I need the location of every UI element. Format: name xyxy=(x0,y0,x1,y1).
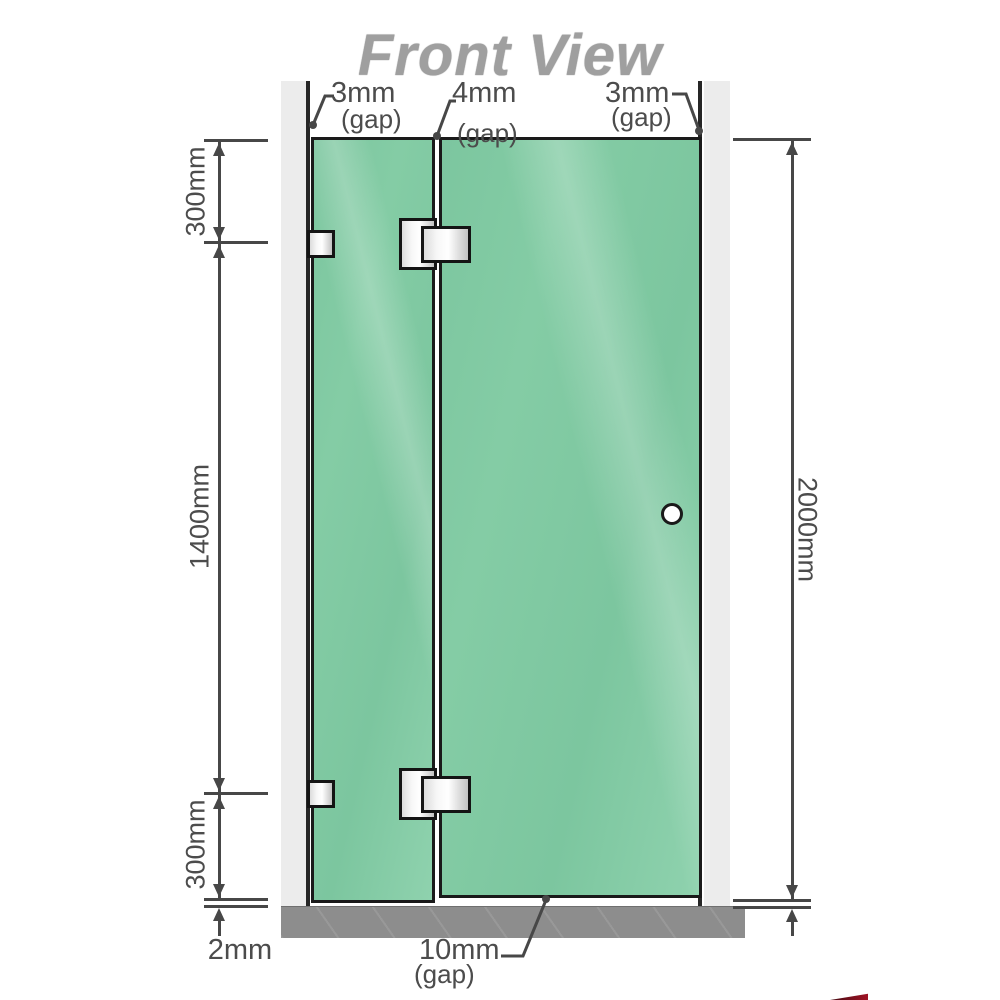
hinge-top-right-plate xyxy=(421,226,471,263)
arrow-icon xyxy=(213,796,225,809)
gap-label-top-middle-value: 4mm xyxy=(452,79,516,108)
hinge-bottom-right-plate xyxy=(421,776,471,813)
left-wall-channel xyxy=(281,81,306,906)
dim-label-300-bottom: 300mm xyxy=(183,785,210,905)
dim-label-2mm: 2mm xyxy=(200,936,280,965)
leader-gap-top-right xyxy=(672,94,699,130)
right-tick-top xyxy=(733,138,811,141)
floor-base xyxy=(281,906,745,938)
arrow-icon xyxy=(213,143,225,156)
gap-label-top-middle-suffix: (gap) xyxy=(457,120,518,146)
wall-bracket-top xyxy=(307,230,335,258)
arrow-icon xyxy=(213,884,225,897)
left-tick-hinge-top xyxy=(204,241,268,244)
right-tick-glass-bottom xyxy=(733,899,811,902)
left-tick-glass-bottom xyxy=(204,898,268,901)
dim-label-1400: 1400mm xyxy=(187,447,214,587)
gap-label-top-left-suffix: (gap) xyxy=(341,106,402,132)
dim-label-2000: 2000mm xyxy=(794,455,821,605)
arrow-icon xyxy=(786,885,798,898)
door-handle-icon xyxy=(661,503,683,525)
left-tick-top xyxy=(204,139,268,142)
dim-label-300-top: 300mm xyxy=(183,132,210,252)
right-tick-floor-top xyxy=(733,906,811,909)
arrow-icon xyxy=(213,778,225,791)
right-wall-channel xyxy=(704,81,730,906)
gap-label-bottom-suffix: (gap) xyxy=(414,961,475,987)
wall-bracket-bottom xyxy=(307,780,335,808)
arrow-icon xyxy=(213,245,225,258)
leader-dot xyxy=(309,121,317,129)
front-view-diagram: Front View 300mm 1400mm 300mm 2mm 2000mm… xyxy=(0,0,1000,1000)
arrow-icon xyxy=(213,227,225,240)
left-tick-hinge-bottom xyxy=(204,792,268,795)
arrow-icon xyxy=(786,142,798,155)
watermark-fragment xyxy=(830,993,868,1000)
gap-label-top-right-suffix: (gap) xyxy=(611,104,672,130)
right-floor-gap-arrow-tail xyxy=(791,920,794,936)
